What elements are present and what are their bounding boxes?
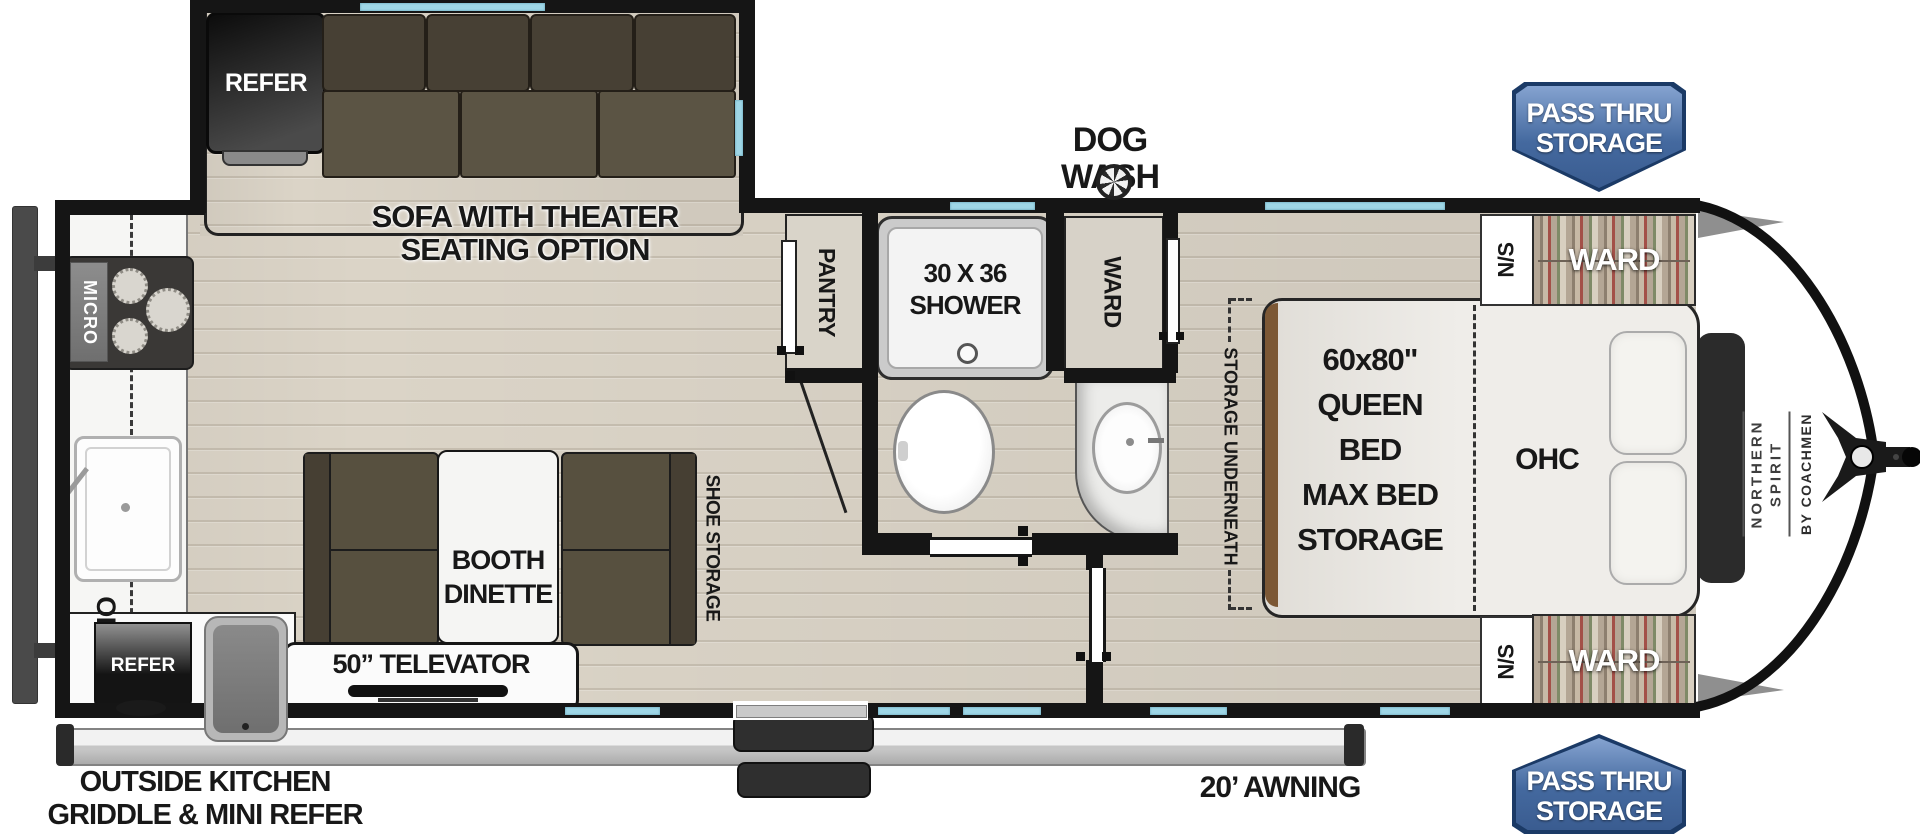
awning-label: 20’ AWNING: [1155, 772, 1405, 804]
slide-refer-base: [222, 150, 308, 166]
door-jamb: [1076, 652, 1085, 661]
door-jamb: [1018, 526, 1028, 536]
sofa-seat-cushion: [322, 90, 460, 178]
televator-label: 50” TELEVATOR: [286, 649, 576, 680]
bench-back: [305, 454, 331, 644]
window-bottom-2: [878, 707, 950, 715]
wardrobe-top-label: WARD: [1569, 242, 1660, 278]
dinette-bench-right: [561, 452, 697, 646]
sink-drain: [121, 503, 130, 512]
window-bottom-1: [565, 707, 660, 715]
entry-step-lower: [737, 762, 871, 798]
door-jamb: [1018, 556, 1028, 566]
window-top-2: [1265, 202, 1445, 210]
tv-icon: [348, 685, 508, 697]
kingpin-dot: [1893, 454, 1899, 460]
awning-end-cap-left: [56, 724, 74, 766]
outside-griddle: [204, 616, 288, 742]
wall-bedroom-stub-top: [1086, 550, 1103, 570]
sofa-option-label: SOFA WITH THEATER SEATING OPTION: [330, 200, 720, 267]
storage-underneath-dash-top: [1228, 298, 1231, 342]
nightstand-bottom: N/S: [1480, 616, 1534, 708]
wall-under-ward: [1064, 368, 1176, 383]
booth-dinette-label-1: BOOTH: [444, 543, 553, 577]
door-jamb: [1176, 332, 1184, 340]
wall-bath-left: [862, 213, 878, 555]
front-window: [1697, 333, 1745, 583]
window-top-1: [950, 202, 1035, 210]
brand-line1: NORTHERN: [1748, 420, 1765, 529]
awning-end-cap-right: [1344, 724, 1364, 766]
kitchen-sink: [74, 436, 182, 582]
mini-refrigerator: REFER: [94, 622, 192, 710]
window-slide-top: [360, 3, 545, 11]
wall-bath-stub: [862, 533, 932, 555]
shower-drain: [957, 343, 978, 364]
shoe-storage: SHOE STORAGE: [692, 470, 730, 625]
shower-size-label: 30 X 36: [879, 257, 1051, 289]
microwave-label-strip: MICRO: [70, 262, 108, 362]
sofa-seat-cushion: [460, 90, 598, 178]
outside-kitchen-line2: GRIDDLE & MINI REFER: [35, 799, 375, 832]
tv-base-icon: [378, 698, 478, 702]
shower: 30 X 36 SHOWER: [876, 216, 1054, 380]
wall-slide-left: [190, 0, 206, 213]
bath-sink-faucet: [1148, 438, 1164, 443]
dinette-table: BOOTH DINETTE: [437, 450, 559, 644]
bath-pocket-door: [1166, 238, 1180, 344]
wardrobe-bottom-label: WARD: [1569, 643, 1660, 679]
pillow: [1609, 331, 1687, 455]
pass-thru-storage-badge-bottom: PASS THRU STORAGE: [1512, 734, 1686, 834]
wall-top-left: [55, 200, 205, 215]
wall-bedroom-stub-bottom: [1086, 660, 1103, 706]
window-bottom-5: [1380, 707, 1450, 715]
sofa: [322, 14, 736, 176]
brand-line2: SPIRIT: [1767, 441, 1784, 507]
sofa-back-cushion: [322, 14, 426, 92]
storage-underneath-dash-corner-bottom: [1230, 607, 1252, 610]
sofa-back-cushion: [634, 14, 736, 92]
rear-bumper: [12, 206, 38, 704]
pillow: [1609, 461, 1687, 585]
brand-northern-spirit: NORTHERN SPIRIT: [1744, 376, 1788, 572]
wall-pantry-bottom: [785, 368, 862, 383]
pass-thru-bottom-line1: PASS THRU: [1512, 766, 1686, 796]
ohc-dashed-divider: [1473, 305, 1476, 611]
bath-sliding-door: [930, 537, 1032, 557]
bath-sink-drain: [1126, 438, 1134, 446]
brand-by-coachmen: BY COACHMEN: [1792, 388, 1820, 560]
nightstand-top: N/S: [1480, 214, 1534, 306]
door-jamb: [1102, 652, 1111, 661]
queen-bed: 60x80" QUEEN BED MAX BED STORAGE OHC: [1262, 298, 1700, 618]
sofa-seat-cushion: [598, 90, 736, 178]
pass-thru-storage-badge-top: PASS THRU STORAGE: [1512, 82, 1686, 192]
sofa-back-cushion: [426, 14, 530, 92]
storage-underneath: STORAGE UNDERNEATH: [1212, 338, 1248, 574]
bench-seam: [329, 549, 437, 551]
window-slide-side: [735, 100, 743, 156]
griddle-door: [213, 625, 279, 733]
sofa-back-cushion: [530, 14, 634, 92]
griddle-latch: [242, 723, 249, 730]
wall-shower-right: [1046, 213, 1064, 371]
outside-kitchen-caption: OUTSIDE KITCHEN GRIDDLE & MINI REFER: [35, 766, 375, 832]
pantry: PANTRY: [796, 218, 856, 366]
wardrobe-top: WARD: [1532, 214, 1696, 306]
pass-thru-bottom-line2: STORAGE: [1512, 796, 1686, 826]
window-bottom-4: [1150, 707, 1227, 715]
bed-label-4: STORAGE: [1285, 517, 1455, 562]
entry-door-panel: [736, 705, 867, 718]
door-jamb: [786, 371, 795, 380]
bedroom-ohc-label: OHC: [1515, 443, 1579, 476]
pantry-door-strip: [781, 240, 797, 354]
booth-dinette-label-2: DINETTE: [444, 577, 553, 611]
storage-underneath-label: STORAGE UNDERNEATH: [1220, 347, 1241, 565]
nightstand-top-label: N/S: [1494, 242, 1520, 277]
toilet-hinge: [898, 441, 908, 461]
shoe-storage-label: SHOE STORAGE: [700, 474, 722, 621]
door-jamb: [777, 346, 786, 355]
bed-size-label: 60x80": [1285, 337, 1455, 382]
slide-refrigerator: REFER: [206, 12, 326, 154]
bedroom-pocket-door: [1089, 568, 1106, 662]
door-jamb: [1159, 332, 1167, 340]
floorplan-canvas: REFER SOFA WITH THEATER SEATING OPTION M…: [0, 0, 1920, 836]
bath-ward-label: WARD: [1098, 256, 1126, 327]
burner: [112, 268, 148, 304]
micro-label: MICRO: [79, 280, 100, 345]
bed-footboard: [1265, 303, 1278, 607]
dog-wash-faucet-icon: [1096, 164, 1132, 200]
storage-underneath-dash-corner-top: [1230, 298, 1252, 301]
toilet: [893, 390, 995, 514]
pass-thru-top-line2: STORAGE: [1512, 128, 1686, 158]
shower-label: SHOWER: [879, 289, 1051, 321]
slide-refer-label: REFER: [225, 69, 307, 98]
wall-rear: [55, 200, 70, 718]
window-bottom-3: [963, 707, 1041, 715]
outside-kitchen-line1: OUTSIDE KITCHEN: [35, 766, 375, 799]
brand-by-label: BY COACHMEN: [1798, 413, 1814, 535]
bath-sink: [1092, 402, 1162, 494]
dinette-bench-left: [303, 452, 439, 646]
burner: [146, 288, 190, 332]
bed-label-3: MAX BED: [1285, 472, 1455, 517]
storage-underneath-dash-bottom: [1228, 570, 1231, 610]
mini-refer-base: [116, 700, 166, 716]
mini-refer-label: REFER: [111, 655, 175, 677]
bed-label-2: QUEEN BED: [1285, 382, 1455, 472]
kingpin-hub-hole: [1851, 446, 1873, 468]
bath-ward: WARD: [1082, 220, 1142, 364]
pantry-label: PANTRY: [813, 248, 840, 337]
bedroom-ohc: OHC: [1505, 443, 1589, 477]
wall-top-main: [739, 198, 1700, 213]
wardrobe-bottom: WARD: [1532, 614, 1696, 708]
bench-seam: [563, 549, 671, 551]
televator-cabinet: 50” TELEVATOR: [283, 642, 579, 712]
nightstand-bottom-label: N/S: [1494, 644, 1520, 679]
burner: [112, 318, 148, 354]
awning-caption: 20’ AWNING: [1155, 772, 1405, 804]
pass-thru-top-line1: PASS THRU: [1512, 98, 1686, 128]
wall-bath-bottom: [1032, 533, 1178, 555]
